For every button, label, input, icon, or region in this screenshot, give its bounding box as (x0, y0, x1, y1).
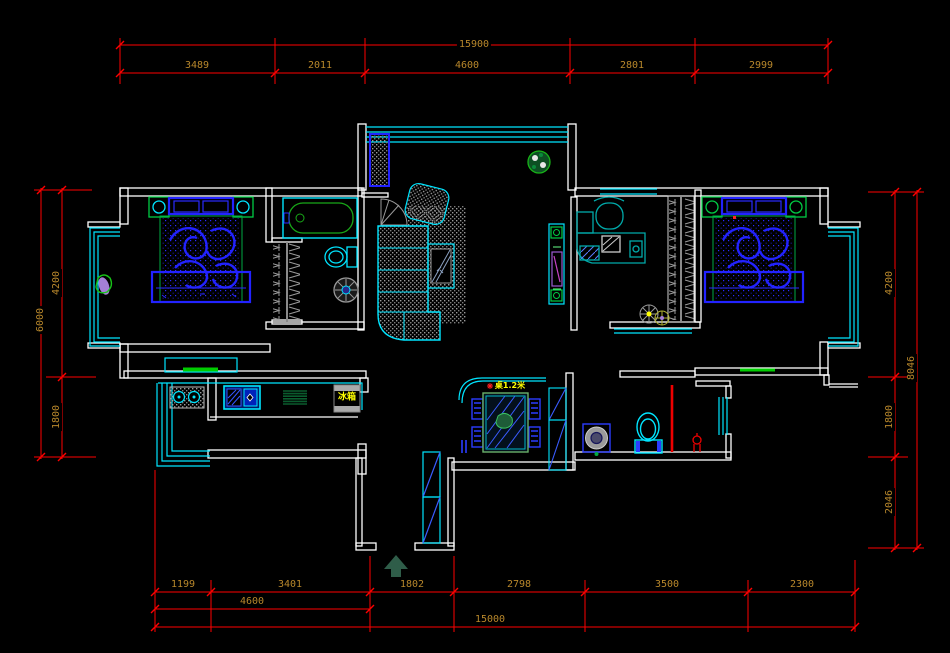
dining-table-icon (483, 393, 528, 452)
study-furniture (577, 196, 694, 325)
bath2-window (719, 397, 727, 435)
bed-icon (152, 198, 250, 302)
door-swing-arc (381, 199, 407, 225)
toilet-icon (635, 413, 662, 453)
study-rail-window (614, 329, 692, 333)
dim-top-seg: 4600 (453, 61, 481, 71)
cad-canvas[interactable]: 15900 3489 2011 4600 2801 2999 6000 4200… (0, 0, 950, 653)
dim-left-seg: 4200 (52, 269, 62, 297)
dim-bottom-overall: 15000 (473, 615, 507, 625)
dim-top-seg: 2011 (306, 61, 334, 71)
closet-icon (273, 242, 300, 322)
walls (88, 124, 860, 550)
bed-icon (705, 198, 803, 302)
desk-chair-icon (594, 197, 624, 229)
shower-icon (693, 433, 701, 452)
balcony-cabinet-icon (370, 134, 389, 186)
closet-icon (668, 196, 694, 322)
dim-top-seg: 2999 (747, 61, 775, 71)
dining-table-label: 桌1.2米 (493, 382, 527, 390)
right-bay-window (828, 228, 858, 346)
dim-bottom-seg: 2300 (788, 580, 816, 590)
desk-icon (577, 212, 645, 263)
shoe-cabinet-icon (423, 452, 440, 543)
floor-plan-drawing (0, 0, 950, 653)
kitchen-fixtures (157, 370, 362, 466)
dim-right-seg: 2046 (885, 488, 895, 516)
entry-arrow-icon (384, 555, 408, 577)
dim-left-seg: 1800 (52, 403, 62, 431)
toilet-icon (325, 247, 357, 267)
balcony-plant-icon (528, 151, 550, 173)
dim-top-seg: 3489 (183, 61, 211, 71)
dim-bottom-seg: 3500 (653, 580, 681, 590)
dim-bottom-seg: 1199 (169, 580, 197, 590)
tv-cabinet-icon (549, 224, 564, 304)
bath1-fixtures (273, 198, 358, 322)
braced-cabinet-icon (549, 388, 566, 470)
dining-furniture (472, 383, 566, 470)
fridge-label: 冰箱 (336, 394, 358, 403)
dish-rack-icon (283, 391, 307, 404)
bed2-marker (733, 216, 736, 219)
dimension-ticks (37, 41, 921, 631)
dim-right-seg: 1800 (885, 403, 895, 431)
dim-left-overall: 6000 (36, 306, 46, 334)
bathtub-icon (283, 198, 357, 238)
sink-icon (224, 386, 260, 409)
bath2-fixtures (583, 385, 701, 456)
washing-machine-icon (583, 424, 610, 456)
study-top-window (600, 189, 657, 194)
dim-bottom-seg: 3401 (276, 580, 304, 590)
dim-bottom-seg: 2798 (505, 580, 533, 590)
dim-top-seg: 2801 (618, 61, 646, 71)
radiator-icon (462, 440, 466, 453)
dim-right-overall: 8046 (907, 354, 917, 382)
dim-bottom-subtotal: 4600 (238, 597, 266, 607)
dim-top-overall: 15900 (457, 40, 491, 50)
stove-icon (170, 387, 204, 408)
living-room-furniture (370, 134, 564, 340)
bedroom2-furniture (702, 197, 950, 302)
washbasin-icon (334, 278, 358, 302)
coffee-table-icon (428, 244, 454, 288)
balcony-window (366, 127, 568, 142)
dim-right-seg: 4200 (885, 269, 895, 297)
dim-bottom-seg: 1802 (398, 580, 426, 590)
